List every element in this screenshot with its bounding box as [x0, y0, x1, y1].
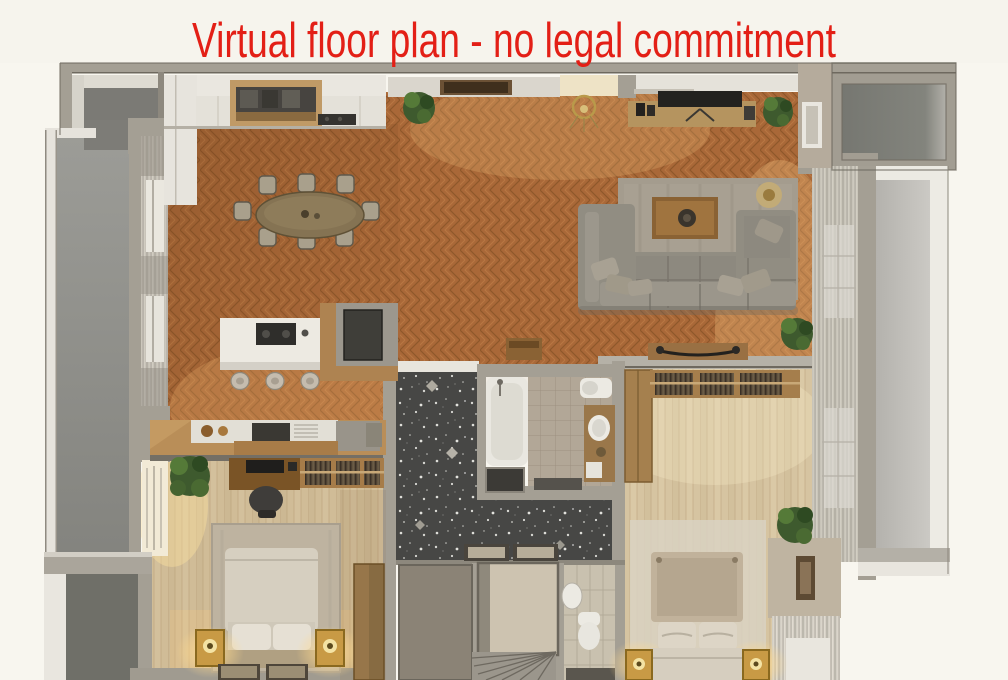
svg-text:Virtual floor plan - no legal: Virtual floor plan - no legal commitment	[192, 14, 836, 68]
